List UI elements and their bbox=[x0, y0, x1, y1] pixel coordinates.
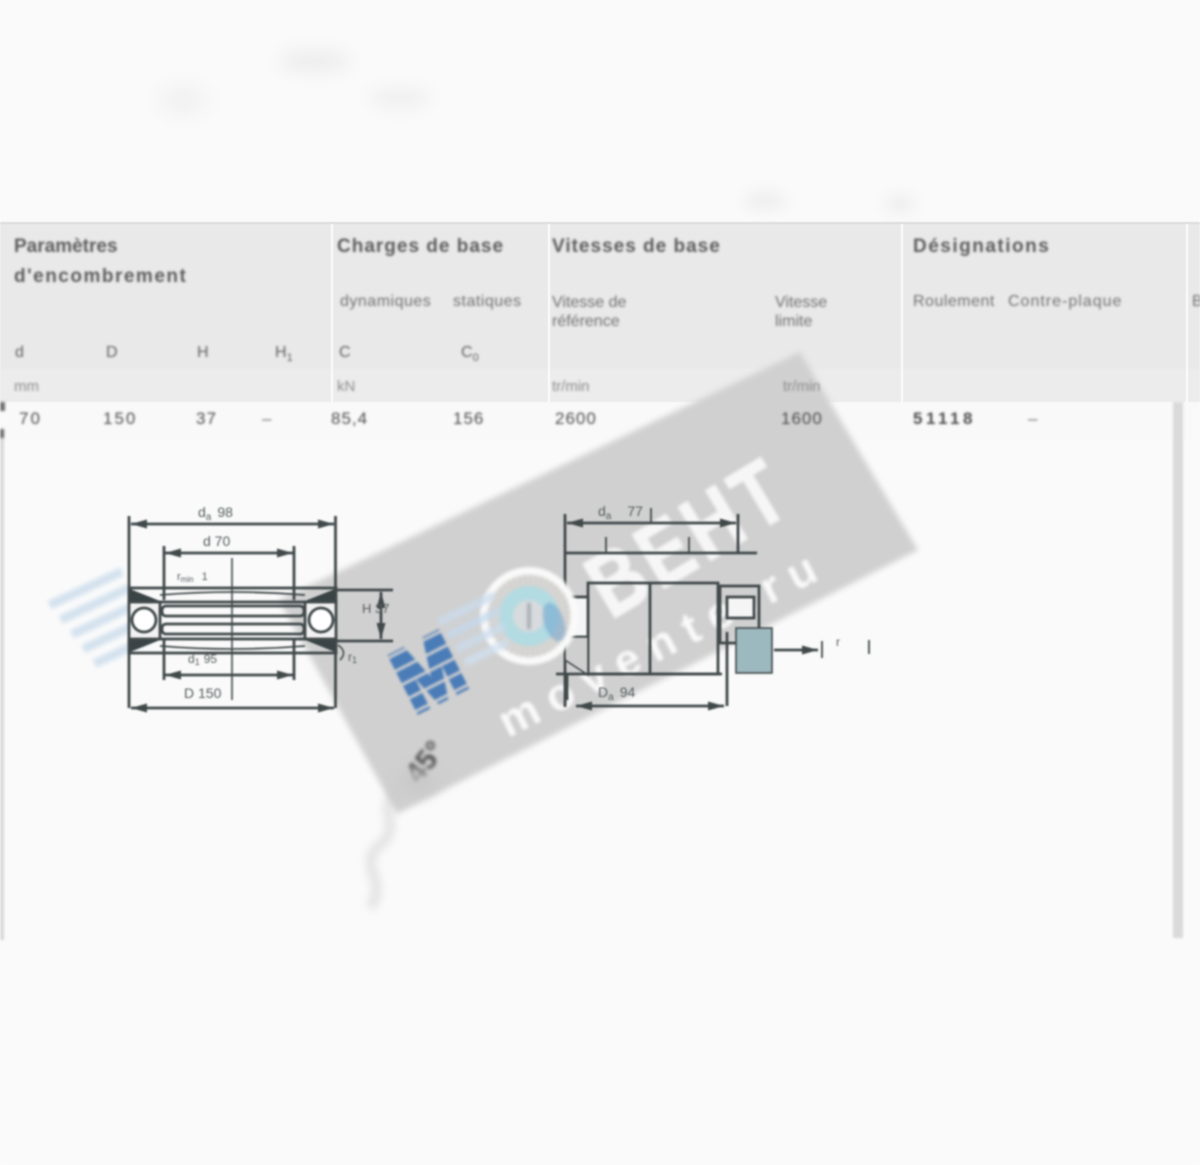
svg-text:r1: r1 bbox=[348, 650, 357, 665]
svg-text:D 150: D 150 bbox=[184, 685, 222, 701]
svg-text:d 70: d 70 bbox=[203, 533, 230, 549]
svg-text:H 37: H 37 bbox=[362, 601, 389, 616]
svg-text:da98: da98 bbox=[198, 504, 233, 523]
svg-text:rmin1: rmin1 bbox=[177, 571, 208, 584]
svg-text:da77: da77 bbox=[598, 503, 643, 522]
svg-text:r: r bbox=[836, 635, 840, 649]
